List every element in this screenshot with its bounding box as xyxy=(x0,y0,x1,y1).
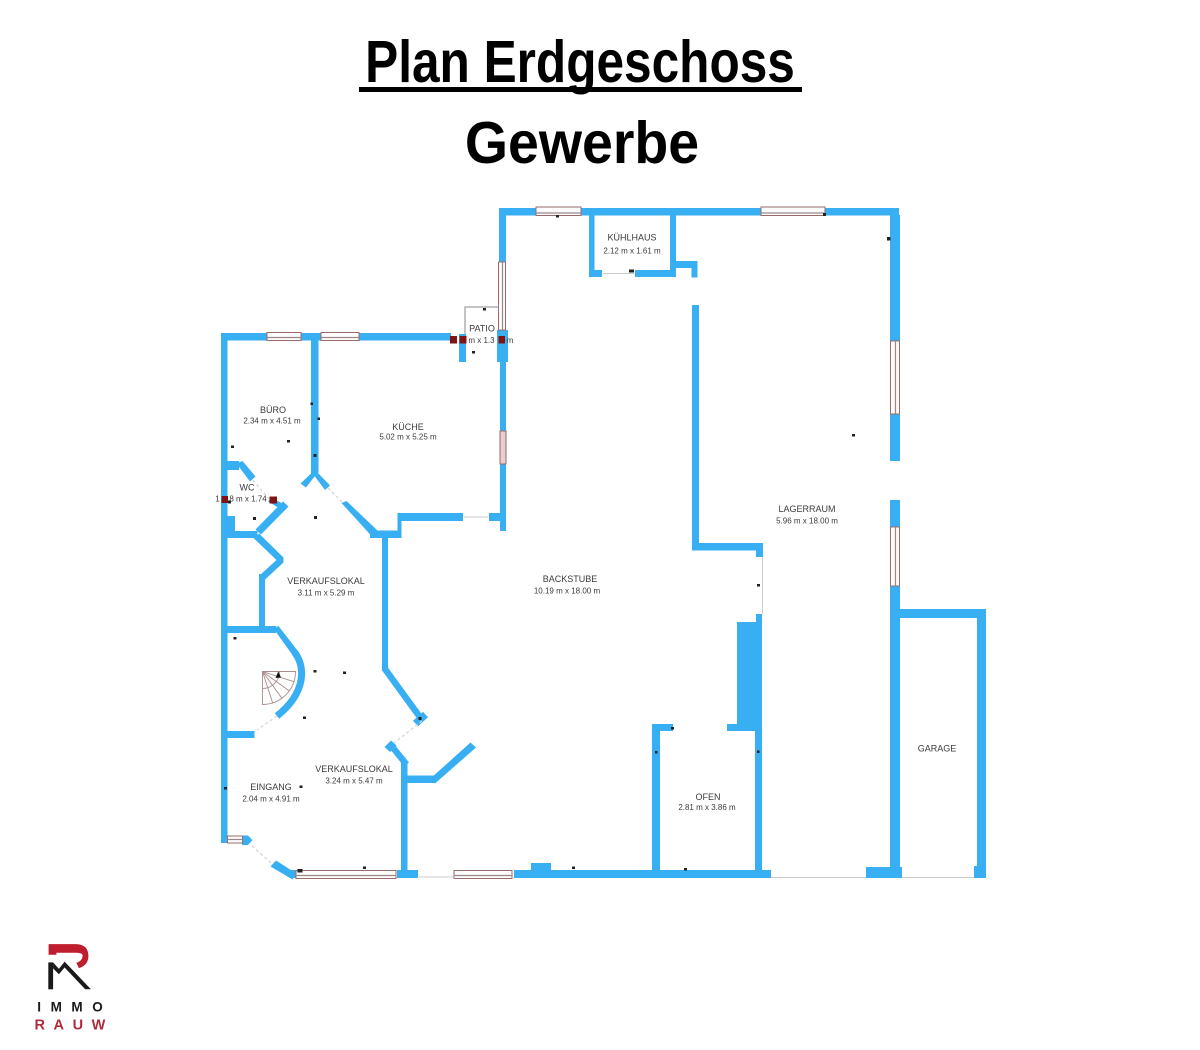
svg-text:IMMO: IMMO xyxy=(37,999,112,1014)
svg-text:RAUW: RAUW xyxy=(34,1017,114,1033)
